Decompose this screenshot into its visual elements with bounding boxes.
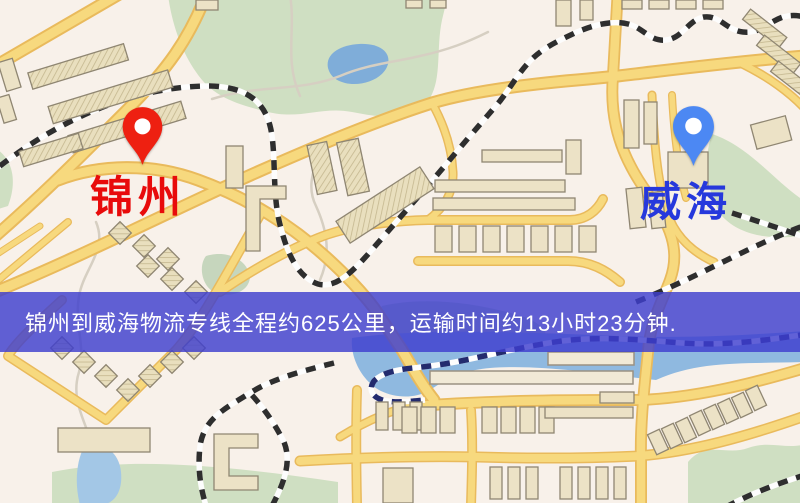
origin-marker[interactable] [121,106,164,166]
origin-city-label: 锦州 [90,177,186,220]
destination-marker[interactable] [671,105,716,167]
destination-city-label: 威海 [640,182,732,223]
route-info-banner: 锦州到威海物流专线全程约625公里，运输时间约13小时23分钟. [0,292,800,352]
map-canvas [0,0,800,503]
map-view[interactable]: 锦州 威海 锦州到威海物流专线全程约625公里，运输时间约13小时23分钟. [0,0,800,503]
park-bottom-right [688,444,800,503]
route-info-text: 锦州到威海物流专线全程约625公里，运输时间约13小时23分钟. [0,306,677,338]
red-location-pin-icon [121,106,164,166]
blue-location-pin-icon [671,105,716,167]
